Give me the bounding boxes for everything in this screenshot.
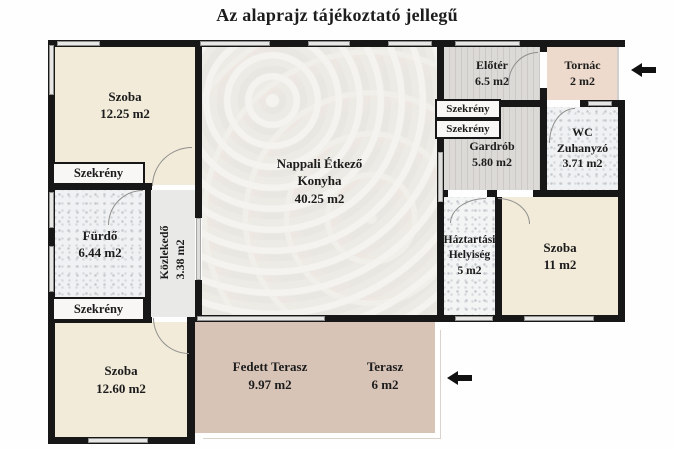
wall-entry-porch-lower bbox=[540, 88, 547, 195]
closet-label: Szekrény bbox=[446, 103, 489, 115]
room-name-line1: Háztartási bbox=[444, 233, 496, 248]
terrace-area: Fedett Terasz 9.97 m2 Terasz 6 m2 bbox=[195, 322, 435, 433]
room-name: Előtér bbox=[476, 58, 508, 74]
room-area: 9.97 m2 bbox=[248, 377, 291, 392]
window-top-1 bbox=[57, 41, 100, 46]
room-name: Fürdő bbox=[83, 227, 118, 244]
closet-label: Szekrény bbox=[446, 123, 489, 135]
closet-right-upper: Szekrény bbox=[435, 99, 501, 119]
plan-title: Az alaprajz tájékoztató jellegű bbox=[0, 5, 674, 26]
opening-living-closet bbox=[438, 152, 443, 202]
floor-plan: Az alaprajz tájékoztató jellegű Szoba 12… bbox=[0, 0, 674, 450]
closet-bottom-left: Szekrény bbox=[52, 297, 145, 321]
entrance-arrow-icon bbox=[631, 63, 657, 77]
room-name: Közlekedő bbox=[157, 226, 171, 280]
window-bottom-left bbox=[88, 438, 148, 443]
room-area: 12.25 m2 bbox=[100, 105, 150, 122]
room-bedroom-top-left: Szoba 12.25 m2 bbox=[55, 47, 195, 163]
room-area: 40.25 m2 bbox=[295, 190, 345, 207]
arrow-shaft bbox=[456, 375, 472, 381]
wall-bedroom-tl-right bbox=[195, 47, 202, 190]
room-name-line2: Helyiség bbox=[449, 248, 491, 263]
wall-mid-right-c bbox=[533, 190, 625, 197]
window-top-5 bbox=[455, 41, 520, 46]
wall-left bbox=[48, 40, 55, 444]
opening-hallway-living bbox=[196, 218, 201, 280]
room-area: 11 m2 bbox=[544, 256, 577, 273]
wall-mid-right-b bbox=[487, 190, 497, 197]
wall-bathroom-right bbox=[145, 190, 151, 317]
terrace-arrow-icon bbox=[447, 371, 473, 385]
wall-hallway-right-upper bbox=[195, 190, 202, 218]
window-left-1 bbox=[49, 45, 54, 95]
window-bottom-utility bbox=[455, 316, 493, 321]
covered-terrace-label: Fedett Terasz 9.97 m2 bbox=[205, 358, 335, 394]
wall-right bbox=[618, 100, 625, 322]
window-left-3 bbox=[49, 246, 54, 292]
room-name: Gardrób bbox=[469, 139, 514, 155]
room-area: 2 m2 bbox=[570, 74, 595, 90]
terrace-sliding-door bbox=[197, 316, 325, 321]
room-name-line1: WC bbox=[572, 125, 593, 141]
room-area: 6.44 m2 bbox=[78, 244, 121, 261]
room-area: 3.71 m2 bbox=[563, 156, 603, 172]
window-bottom-bedroom-right bbox=[524, 316, 594, 321]
room-name-line2: Konyha bbox=[297, 172, 341, 189]
room-living-dining-kitchen: Nappali Étkező Konyha 40.25 m2 bbox=[202, 47, 437, 315]
room-porch: Tornác 2 m2 bbox=[547, 47, 618, 100]
window-top-3 bbox=[308, 41, 350, 46]
closet-top-left: Szekrény bbox=[52, 162, 145, 185]
room-area: 6.5 m2 bbox=[475, 74, 509, 90]
room-name: Szoba bbox=[104, 362, 137, 379]
terrace-label: Terasz 6 m2 bbox=[340, 358, 430, 394]
wall-entry-porch-upper bbox=[540, 47, 547, 52]
closet-right-lower: Szekrény bbox=[435, 119, 501, 139]
window-porch-wc bbox=[588, 101, 612, 106]
room-name-line1: Nappali Étkező bbox=[277, 155, 363, 172]
window-top-4 bbox=[388, 41, 432, 46]
room-name: Szoba bbox=[543, 239, 576, 256]
room-area: 3.38 m2 bbox=[173, 240, 187, 280]
room-area: 5.80 m2 bbox=[472, 155, 512, 171]
room-area: 5 m2 bbox=[458, 264, 482, 279]
room-name: Terasz bbox=[367, 359, 403, 374]
room-area: 12.60 m2 bbox=[96, 380, 146, 397]
room-name: Fedett Terasz bbox=[233, 359, 308, 374]
closet-label: Szekrény bbox=[74, 302, 123, 317]
room-name: Szoba bbox=[108, 88, 141, 105]
room-area: 6 m2 bbox=[371, 377, 398, 392]
window-left-2 bbox=[49, 192, 54, 228]
arrow-shaft bbox=[640, 67, 656, 73]
porch-open-edge bbox=[617, 47, 619, 100]
room-name: Tornác bbox=[564, 58, 600, 74]
closet-label: Szekrény bbox=[74, 166, 123, 181]
window-top-2 bbox=[200, 41, 270, 46]
